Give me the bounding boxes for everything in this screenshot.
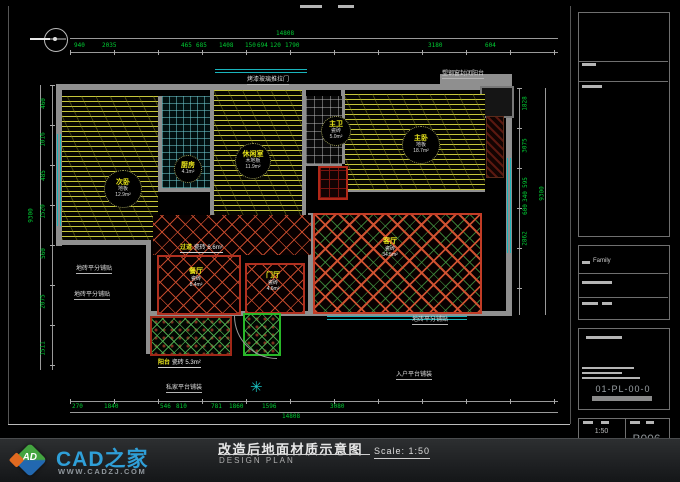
dim-value: 595 (522, 177, 529, 188)
micro-text-bar (582, 85, 602, 88)
room-material: 瓷砖 (172, 360, 184, 366)
wall-segment (56, 240, 150, 245)
dim-value: 1408 (219, 42, 233, 49)
dim-line-bottom-total (70, 412, 558, 413)
dim-line-top-total (70, 38, 558, 39)
titleblock-divider (578, 273, 668, 274)
wardrobe-hatch (486, 116, 504, 178)
room-area: 18.7m² (413, 149, 429, 155)
room-area: 6.6m² (207, 245, 222, 251)
annotation: 烤漆玻璃推拉门 (247, 74, 289, 85)
room-area: 4.6m² (245, 286, 301, 292)
micro-text-bar (586, 336, 622, 339)
annotation: 塑钢窗封闭阳台 (442, 68, 484, 79)
dim-line-left-total (40, 85, 41, 370)
titleblock-divider (578, 81, 668, 82)
room-label-menting: 门厅 瓷砖 4.6m² (245, 272, 301, 292)
dim-value: 120 (270, 42, 281, 49)
room-label-xiuxianshi: 休闲室 木地板 11.9m² (235, 143, 271, 179)
room-label-guodao: 过道 瓷砖 6.6m² (180, 242, 223, 253)
room-label-yangtai: 阳台 瓷砖 5.3m² (158, 357, 201, 368)
titleblock-divider (578, 61, 668, 62)
dim-value: 560 (40, 248, 47, 259)
annotation: 地砖平分铺贴 (74, 289, 110, 300)
dim-line-right-total (545, 88, 546, 315)
scale-label: Scale: 1:50 (374, 446, 430, 456)
title-bar-strip (592, 396, 652, 401)
micro-text-bar (602, 302, 612, 305)
room-area: 5.0m² (330, 135, 343, 141)
entry-door-arc (234, 316, 277, 359)
annotation: 入户平台铺装 (396, 369, 432, 380)
micro-text-bar (583, 421, 593, 424)
dim-value: 1016 (40, 132, 47, 146)
micro-text-bar (582, 377, 640, 379)
dim-value: 604 (485, 42, 496, 49)
dim-value: 2075 (40, 294, 47, 308)
drawing-title-en: DESIGN PLAN (219, 456, 295, 465)
sheet-frame-left (8, 6, 9, 424)
dim-value: 1596 (262, 403, 276, 410)
dim-value: 600 (522, 204, 529, 215)
window-line (507, 158, 508, 253)
room-yangtai-floor (150, 316, 232, 356)
logo-letters: AD (23, 452, 37, 463)
room-material: 瓷砖 (194, 245, 206, 251)
compass-hub (53, 37, 57, 41)
micro-text-bar (582, 281, 612, 284)
dim-value: 2862 (522, 231, 529, 245)
dim-value: 1840 (104, 403, 118, 410)
room-area: 34.5m² (362, 252, 418, 258)
dim-value: 1511 (40, 341, 47, 355)
window-line (215, 69, 307, 70)
compass-needle (30, 38, 66, 40)
annotation: 地砖平分铺贴 (412, 314, 448, 325)
window-line (60, 134, 61, 226)
micro-text-bar (582, 367, 634, 369)
micro-text-bar (582, 372, 622, 374)
wall-segment (158, 188, 214, 192)
room-area: 4.1m² (182, 170, 195, 176)
dim-value: 14808 (282, 413, 300, 420)
dim-value: 340 (522, 191, 529, 202)
dim-value: 270 (72, 403, 83, 410)
room-label-canting: 餐厅 瓷砖 8.4m² (168, 268, 224, 288)
dim-value: 694 (257, 42, 268, 49)
dim-value: 685 (196, 42, 207, 49)
dim-value: 781 (211, 403, 222, 410)
dim-value: 9300 (539, 186, 546, 200)
room-area: 11.9m² (245, 165, 260, 171)
room-label-chufang: 厨房 4.1m² (174, 155, 202, 183)
micro-text-bar (300, 5, 322, 8)
dim-value: 546 (160, 403, 171, 410)
dim-value: 14808 (276, 30, 294, 37)
drawing-number: 01-PL-00-0 (578, 384, 668, 394)
annotation: 地砖平分铺贴 (76, 263, 112, 274)
sheet-frame-right (570, 6, 571, 424)
annotation: 私家平台铺装 (166, 382, 202, 393)
dim-ticks-left (50, 85, 55, 370)
dim-value: 1860 (229, 403, 243, 410)
storage-box (480, 86, 514, 118)
dim-value: 460 (40, 98, 47, 109)
room-keting-floor (313, 213, 482, 314)
dim-value: 2035 (102, 42, 116, 49)
room-area: 8.4m² (168, 282, 224, 288)
dim-value: 1828 (522, 96, 529, 110)
dim-ticks-top (70, 50, 558, 55)
micro-text-bar (646, 421, 654, 424)
dim-ticks-bottom (70, 399, 558, 404)
dim-value: 810 (176, 403, 187, 410)
brand-website: WWW.CADZJ.COM (58, 467, 146, 476)
window-line (510, 158, 511, 253)
dim-value: 3080 (330, 403, 344, 410)
dim-value: 150 (245, 42, 256, 49)
titleblock-box-a (578, 12, 670, 237)
cad-screenshot: { "footer": { "brand": "CAD之家", "website… (0, 0, 680, 481)
micro-text-bar (582, 261, 590, 264)
micro-text-bar (338, 5, 354, 8)
room-label-zhuwei: 主卫 瓷砖 5.0m² (321, 116, 351, 146)
dim-value: 1520 (40, 204, 47, 218)
micro-text-bar (582, 302, 598, 305)
scale-underline (374, 458, 430, 459)
micro-text-bar (630, 421, 640, 424)
family-label: Family (593, 258, 611, 264)
dim-value: 485 (40, 170, 47, 181)
shoe-cabinet (318, 166, 348, 200)
window-line (215, 72, 307, 73)
room-name: 阳台 (158, 360, 170, 366)
window-line (57, 134, 58, 226)
room-label-ciwo: 次卧 地板 12.9m² (104, 170, 142, 208)
room-guodao-floor (153, 215, 311, 255)
room-area: 5.3m² (185, 360, 200, 366)
title-underline (218, 454, 370, 455)
room-area: 12.9m² (115, 193, 131, 199)
dim-value: 940 (74, 42, 85, 49)
room-label-zhuwo: 主卧 地板 18.7m² (402, 126, 440, 164)
sheet-frame-bottom (8, 424, 570, 425)
dim-value: 3180 (428, 42, 442, 49)
micro-text-bar (601, 421, 609, 424)
room-ciwo-floor (62, 96, 158, 240)
titleblock-divider (578, 297, 668, 298)
room-name: 过道 (180, 245, 192, 251)
dim-value: 1790 (285, 42, 299, 49)
scale-value: 1:50 (578, 428, 625, 435)
micro-text-bar (582, 63, 596, 66)
plant-symbol: ✳ (250, 378, 263, 396)
dim-value: 3075 (522, 138, 529, 152)
dim-value: 465 (181, 42, 192, 49)
dim-value: 9300 (28, 208, 35, 222)
room-label-keting: 客厅 瓷砖 34.5m² (362, 238, 418, 258)
